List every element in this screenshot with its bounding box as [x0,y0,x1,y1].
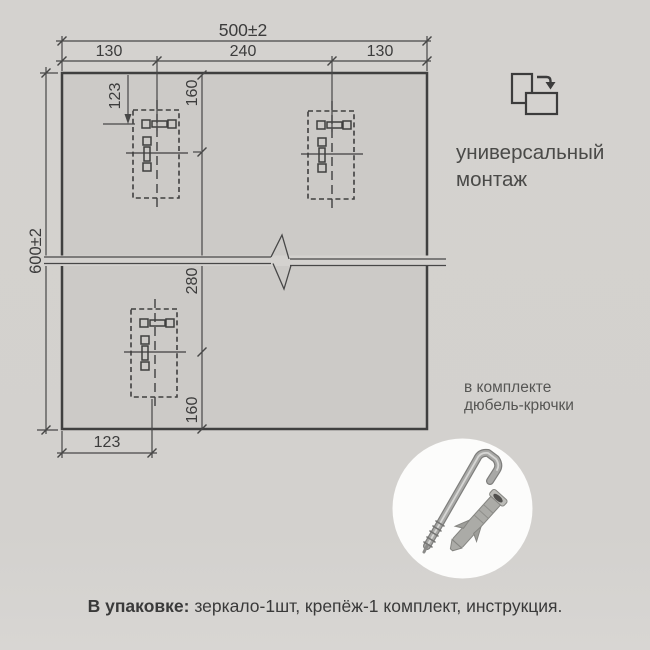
dim-width-center: 240 [230,43,257,60]
kit-line2: дюбель-крючки [464,397,574,415]
portrait-to-landscape-rotate-icon [510,70,560,120]
kit-text: в комплекте дюбель-крючки [464,379,574,414]
dim-width-left: 130 [96,43,123,60]
universal-mount-line1: универсальный [456,139,604,166]
dim-height-total: 600±2 [27,228,45,274]
package-label: В упаковке: [88,596,190,616]
mirror-outline [62,73,427,429]
dim-hook-to-bottom: 160 [184,397,201,424]
dim-hook-to-hook: 280 [184,268,201,295]
rotate-arrowhead [546,82,556,90]
landscape-frame-icon [526,93,557,114]
hook-and-dowel-photo [391,437,534,580]
universal-mount-line2: монтаж [456,166,604,193]
dim-top-to-hook: 160 [184,80,201,107]
kit-line1: в комплекте [464,379,574,397]
universal-mount-text: универсальный монтаж [456,139,604,193]
package-items: зеркало-1шт, крепёж-1 комплект, инструкц… [189,596,562,616]
photo-circle [393,439,533,579]
dim-hook-inset-top: 123 [107,83,124,110]
dim-hook-inset-bottom: 123 [94,434,121,451]
package-contents-text: В упаковке: зеркало-1шт, крепёж-1 компле… [0,595,650,617]
dim-width-right: 130 [367,43,394,60]
dim-width-total: 500±2 [219,20,268,40]
